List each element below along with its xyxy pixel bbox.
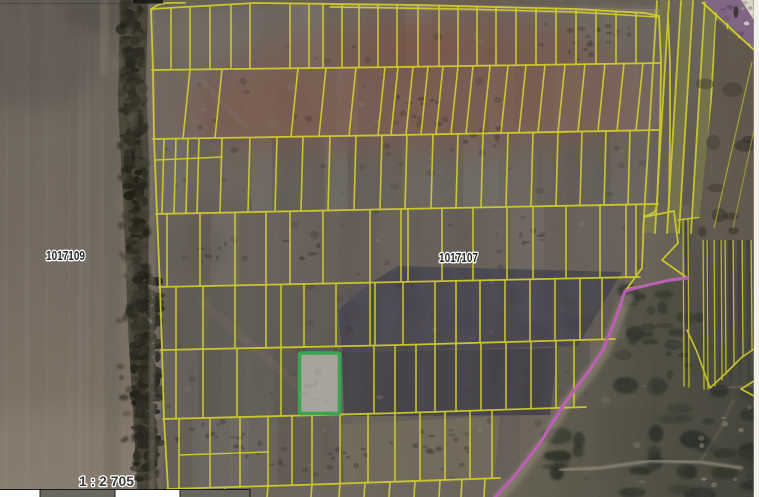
svg-text:1017107: 1017107 xyxy=(439,250,478,265)
svg-text:1 : 2 705: 1 : 2 705 xyxy=(79,474,134,489)
svg-text:1017109: 1017109 xyxy=(46,248,85,263)
